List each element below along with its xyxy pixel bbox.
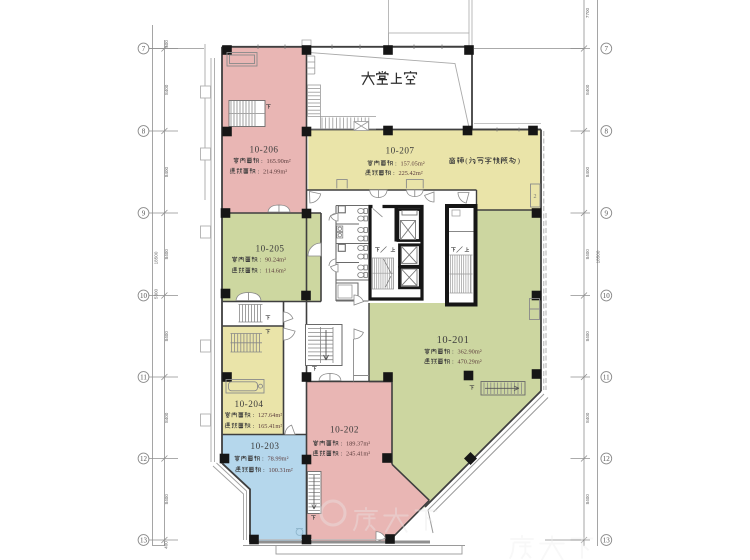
svg-text:362.90m²: 362.90m² — [458, 349, 482, 356]
svg-text::: : — [262, 456, 264, 463]
svg-text:100.31m²: 100.31m² — [269, 467, 293, 474]
svg-text:90.24m²: 90.24m² — [265, 257, 286, 264]
svg-text:13: 13 — [140, 536, 148, 544]
svg-text:12: 12 — [603, 455, 611, 463]
svg-text:8400: 8400 — [585, 166, 590, 177]
svg-text:5300: 5300 — [154, 288, 159, 299]
svg-text:18500: 18500 — [154, 251, 159, 264]
svg-text:114.6m²: 114.6m² — [265, 268, 286, 275]
svg-text:225.42m²: 225.42m² — [399, 170, 423, 177]
svg-text:10-207: 10-207 — [385, 146, 414, 156]
svg-text:10-205: 10-205 — [255, 244, 284, 254]
svg-text:8400: 8400 — [164, 494, 169, 505]
svg-text::: : — [452, 359, 454, 366]
svg-text:157.05m²: 157.05m² — [401, 160, 425, 167]
svg-text:7: 7 — [142, 45, 146, 53]
svg-text:18500: 18500 — [596, 250, 601, 263]
svg-text::: : — [253, 423, 255, 430]
svg-text:10-206: 10-206 — [249, 145, 278, 155]
svg-text:8: 8 — [605, 127, 609, 135]
svg-text::: : — [260, 268, 262, 275]
svg-text:8400: 8400 — [585, 331, 590, 342]
svg-text::: : — [253, 412, 255, 419]
svg-text:8400: 8400 — [585, 84, 590, 95]
svg-text:8400: 8400 — [585, 494, 590, 505]
svg-text::: : — [395, 160, 397, 167]
svg-text::: : — [341, 440, 343, 447]
svg-text:470.29m²: 470.29m² — [458, 359, 482, 366]
svg-text:8400: 8400 — [585, 412, 590, 423]
svg-text:10-204: 10-204 — [234, 399, 263, 409]
svg-text:11: 11 — [140, 373, 147, 381]
svg-text:10-203: 10-203 — [250, 441, 279, 451]
svg-text:7: 7 — [605, 45, 609, 53]
svg-text:2: 2 — [534, 194, 537, 200]
svg-text:8400: 8400 — [164, 249, 169, 260]
svg-text:245.41m²: 245.41m² — [346, 451, 370, 458]
svg-text:78.99m²: 78.99m² — [268, 456, 289, 463]
svg-text:8400: 8400 — [164, 331, 169, 342]
svg-text::: : — [263, 467, 265, 474]
svg-text:400: 400 — [164, 40, 169, 48]
svg-text:214.99m²: 214.99m² — [263, 168, 287, 175]
svg-text::: : — [393, 170, 395, 177]
svg-text:10-202: 10-202 — [330, 425, 359, 435]
svg-text:8: 8 — [142, 127, 146, 135]
svg-text:8400: 8400 — [164, 84, 169, 95]
svg-text::: : — [261, 158, 263, 165]
svg-text::: : — [260, 257, 262, 264]
svg-text::: : — [452, 349, 454, 356]
svg-text:165.41m²: 165.41m² — [258, 423, 282, 430]
svg-text:8400: 8400 — [585, 249, 590, 260]
svg-text:8400: 8400 — [164, 412, 169, 423]
svg-text:9: 9 — [142, 209, 146, 217]
svg-text:12: 12 — [140, 455, 148, 463]
svg-text::: : — [258, 168, 260, 175]
svg-text:13: 13 — [603, 536, 611, 544]
svg-text:400: 400 — [164, 541, 169, 549]
svg-text::: : — [341, 451, 343, 458]
svg-text:9: 9 — [605, 209, 609, 217]
svg-text:189.37m²: 189.37m² — [346, 440, 370, 447]
svg-text:10: 10 — [603, 292, 611, 300]
svg-text:8400: 8400 — [164, 166, 169, 177]
svg-text:11: 11 — [603, 373, 610, 381]
svg-text:10: 10 — [140, 292, 148, 300]
svg-text:127.64m²: 127.64m² — [258, 412, 282, 419]
svg-text:10-201: 10-201 — [437, 335, 470, 346]
svg-text:7700: 7700 — [585, 7, 590, 18]
svg-text:165.90m²: 165.90m² — [267, 158, 291, 165]
